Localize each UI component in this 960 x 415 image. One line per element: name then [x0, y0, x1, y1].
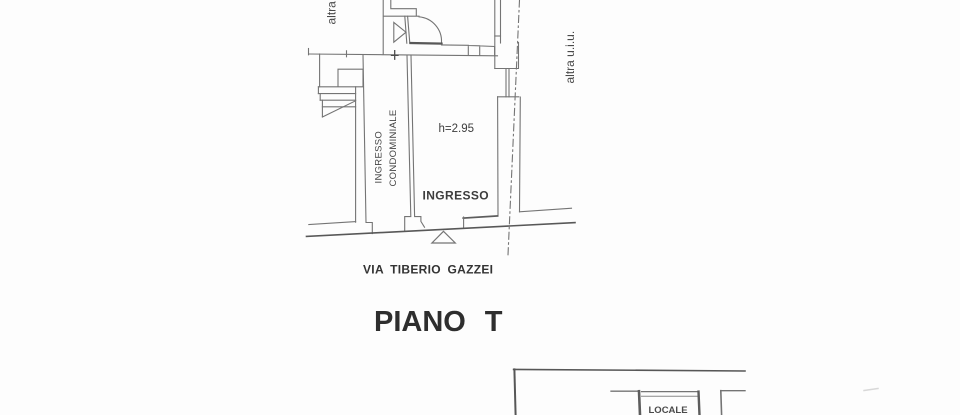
svg-text:h=2.95: h=2.95: [439, 123, 475, 135]
svg-text:PIANOT: PIANOT: [374, 306, 503, 338]
svg-text:altra: altra: [325, 1, 339, 25]
svg-text:INGRESSO: INGRESSO: [423, 189, 490, 203]
svg-text:altra u.i.u.: altra u.i.u.: [563, 31, 577, 84]
svg-text:LOCALE: LOCALE: [649, 405, 688, 415]
svg-text:INGRESSO: INGRESSO: [374, 131, 385, 184]
svg-text:VIA TIBERIO GAZZEI: VIA TIBERIO GAZZEI: [363, 263, 493, 277]
svg-text:CONDOMINIALE: CONDOMINIALE: [388, 110, 399, 187]
